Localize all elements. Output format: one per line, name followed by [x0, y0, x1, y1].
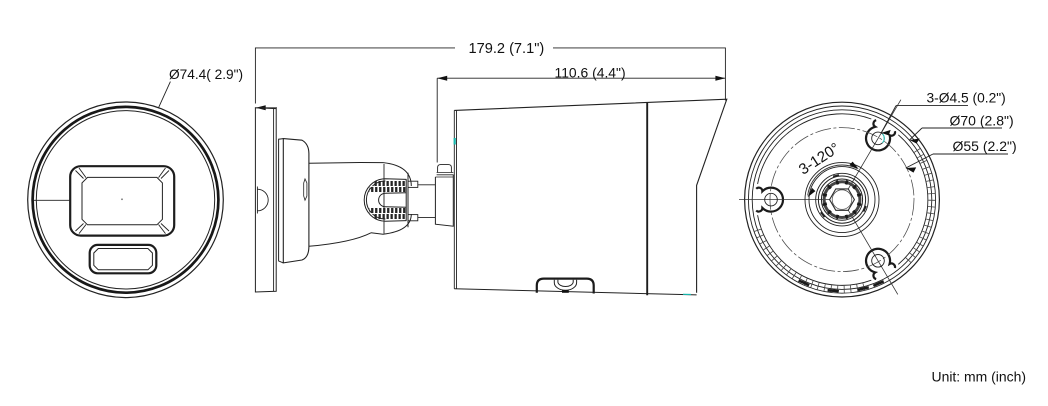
svg-text:3-Ø4.5 (0.2"): 3-Ø4.5 (0.2"): [927, 90, 1006, 105]
svg-text:Ø70 (2.8"): Ø70 (2.8"): [950, 112, 1014, 128]
svg-text:Unit: mm (inch): Unit: mm (inch): [932, 369, 1026, 385]
svg-text:179.2 (7.1"): 179.2 (7.1"): [469, 41, 545, 57]
svg-text:Ø55 (2.2"): Ø55 (2.2"): [953, 138, 1017, 154]
svg-text:3-120°: 3-120°: [796, 140, 843, 179]
svg-text:Ø74.4( 2.9"): Ø74.4( 2.9"): [169, 67, 243, 82]
